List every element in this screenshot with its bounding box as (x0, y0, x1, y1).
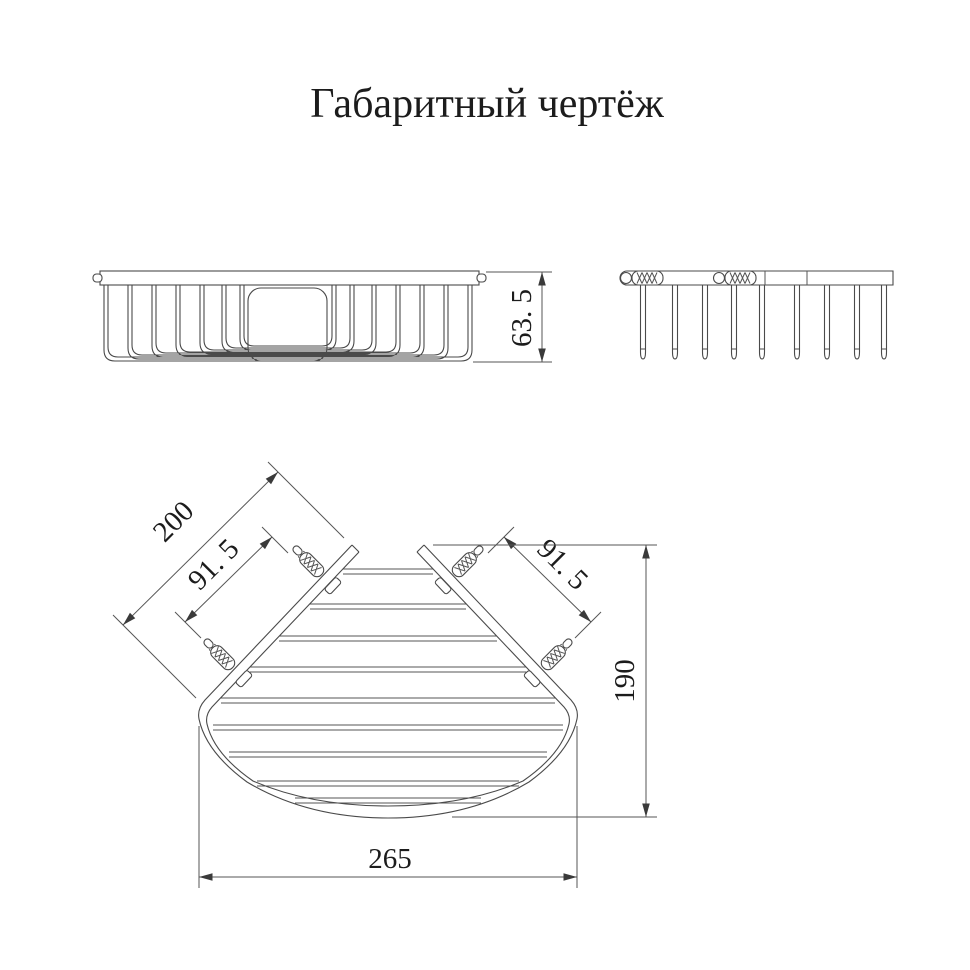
prong (673, 285, 678, 359)
mounting-tab (324, 577, 342, 595)
inner-rim (207, 552, 570, 806)
dim-265-label: 265 (368, 843, 412, 875)
side-view (620, 271, 893, 359)
dim-width-265: 265 (199, 726, 577, 888)
dimensional-drawing: Габаритный чертёж (0, 0, 970, 970)
grid-wire (343, 569, 433, 574)
dim-91-5-left-label: 91. 5 (182, 533, 246, 597)
wall-plug-assembly (621, 271, 664, 285)
page-title: Габаритный чертёж (310, 81, 665, 127)
outer-rim (199, 545, 578, 818)
extension-line (268, 462, 344, 538)
grid-wire (310, 604, 466, 609)
wire-loop (132, 285, 444, 355)
mounting-tab (434, 577, 452, 595)
grid-wire (221, 698, 555, 703)
dim-plug-spacing-right-91-5: 91. 5 (488, 527, 601, 638)
grid-wire (213, 725, 563, 730)
basket-outline (199, 545, 578, 818)
wire-loop (180, 285, 396, 352)
prong (855, 285, 860, 359)
grid-wires (213, 569, 563, 803)
wire-loop (204, 285, 372, 350)
prong (760, 285, 765, 359)
mounting-tab (523, 670, 541, 688)
wire-loop (222, 285, 354, 352)
grid-wire (250, 667, 526, 672)
dim-91-5-right-label: 91. 5 (531, 533, 595, 597)
rail-end-face (352, 545, 424, 552)
grid-wire (229, 752, 547, 757)
mounting-tab (235, 670, 253, 688)
prong (641, 285, 646, 359)
dim-190-label: 190 (609, 659, 641, 703)
front-view: 63. 5 (93, 271, 552, 362)
extension-line (175, 612, 201, 638)
wire-loop (176, 285, 400, 356)
screw-head-icon (621, 273, 632, 284)
plan-view: 200 91. 5 91. 5 190 265 (113, 462, 657, 888)
dim-depth-190: 190 (433, 545, 657, 817)
wire-loop (244, 285, 332, 346)
basket-wires (104, 285, 472, 361)
screw-head-icon (714, 273, 725, 284)
extension-line (575, 612, 601, 638)
prong (882, 285, 887, 359)
prong (732, 285, 737, 359)
grid-wire (257, 781, 519, 786)
extension-line (488, 527, 514, 553)
prong (825, 285, 830, 359)
prong (703, 285, 708, 359)
extension-line (113, 615, 196, 698)
dimension-line (123, 472, 278, 625)
dim-63-5-label: 63. 5 (506, 289, 538, 347)
rail-end-cap-left (93, 274, 102, 282)
dim-200-label: 200 (147, 495, 200, 548)
wire-loop (240, 285, 336, 350)
prong (795, 285, 800, 359)
grid-wire (279, 636, 497, 641)
hanging-prongs (641, 285, 887, 359)
rail-end-cap-right (477, 274, 486, 282)
dim-height-63-5: 63. 5 (473, 272, 552, 362)
wire-loop (156, 285, 420, 353)
extension-line (262, 527, 288, 553)
drawing-canvas: Габаритный чертёж (0, 0, 970, 970)
mounting-rail (100, 271, 479, 285)
dim-plug-spacing-left-91-5: 91. 5 (175, 527, 288, 638)
wall-plug-assembly (714, 271, 757, 285)
